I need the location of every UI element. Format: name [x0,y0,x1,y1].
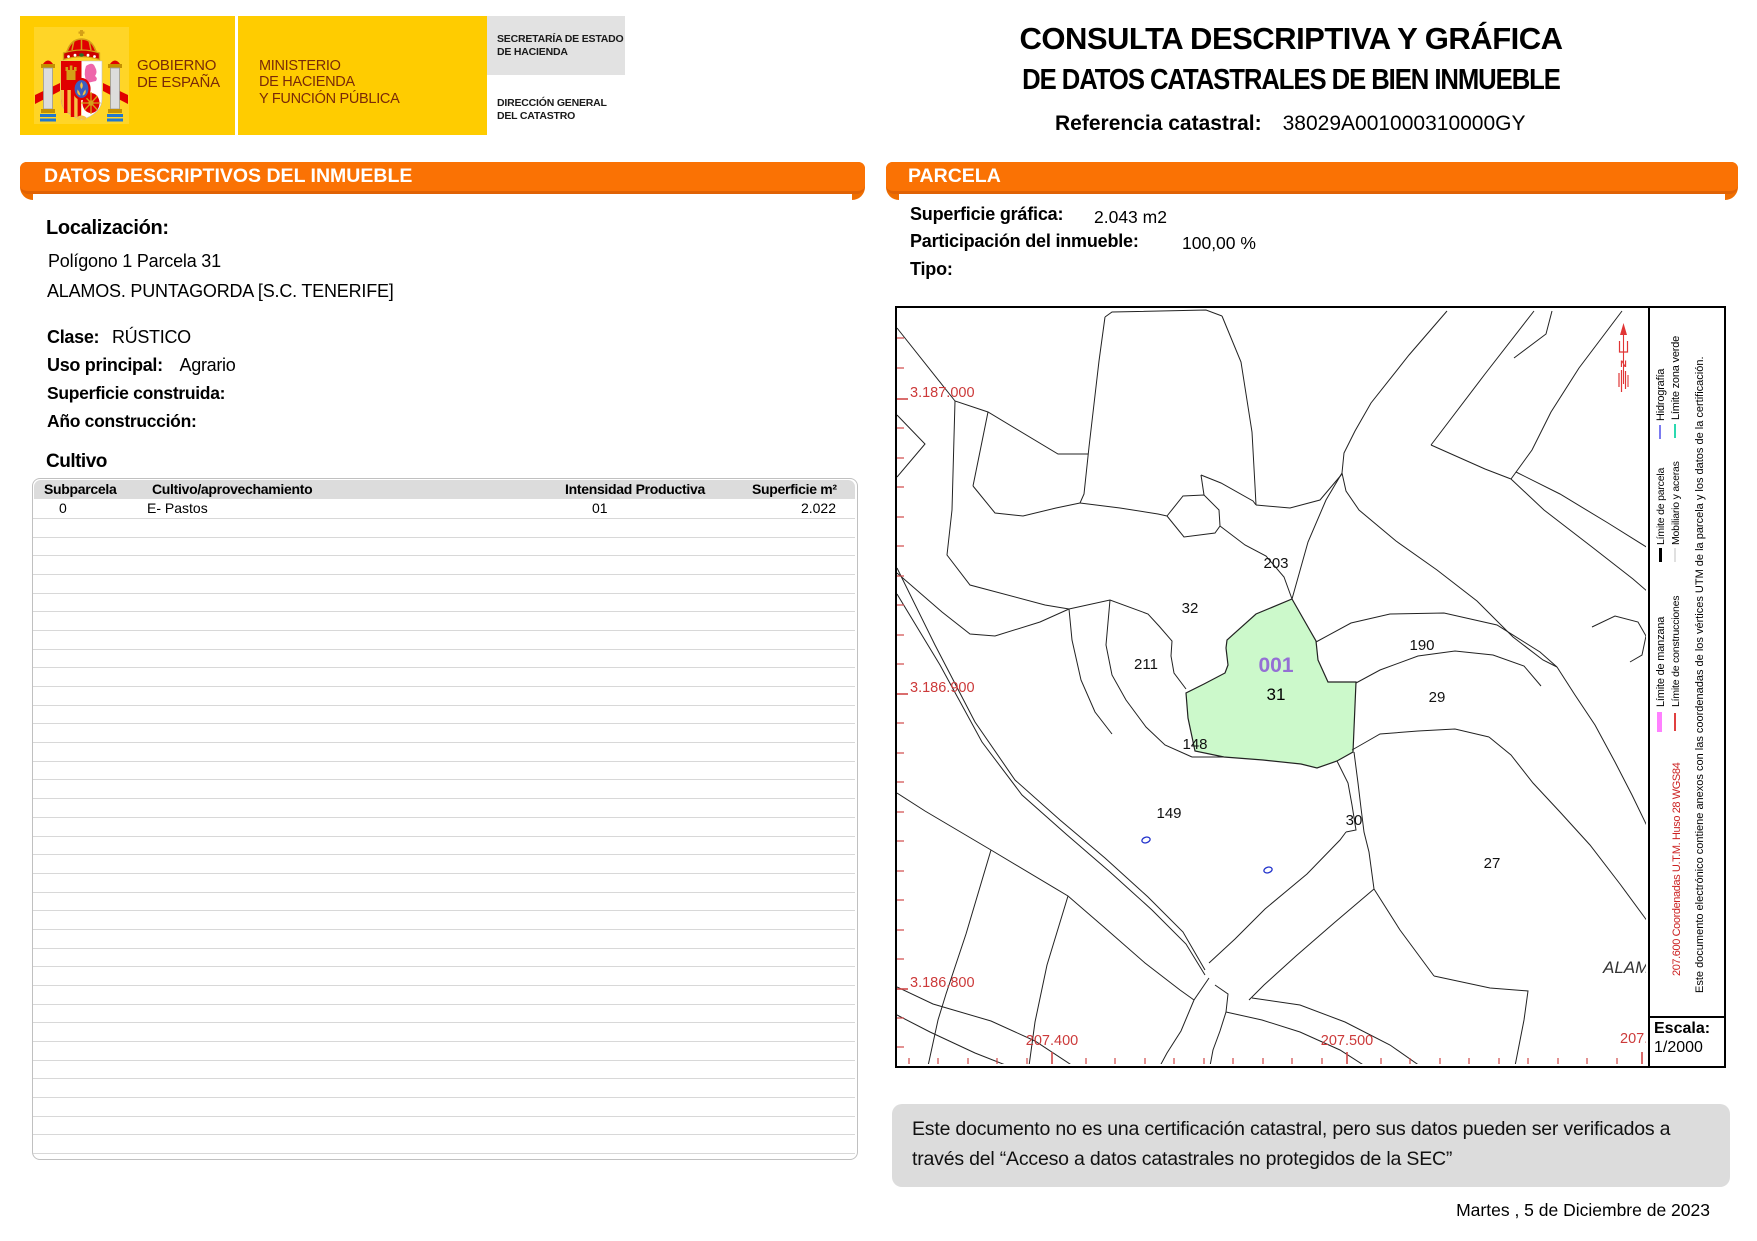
svg-text:190: 190 [1409,637,1434,654]
svg-text:001: 001 [1258,654,1293,677]
svg-text:148: 148 [1182,736,1207,753]
svg-text:207.400: 207.400 [1026,1033,1078,1049]
svg-text:30: 30 [1346,812,1363,829]
svg-text:149: 149 [1156,805,1181,822]
svg-text:N: N [1620,359,1627,369]
svg-text:207.500: 207.500 [1321,1033,1373,1049]
svg-text:27: 27 [1484,855,1501,872]
svg-text:3.187.000: 3.187.000 [910,385,975,401]
svg-text:29: 29 [1429,689,1446,706]
svg-text:207.: 207. [1620,1031,1646,1047]
svg-text:3.186.800: 3.186.800 [910,975,975,991]
svg-text:ALAM: ALAM [1602,958,1646,977]
svg-text:31: 31 [1267,685,1286,704]
svg-text:211: 211 [1134,656,1158,673]
svg-text:32: 32 [1182,600,1199,617]
svg-text:3.186.900: 3.186.900 [910,680,975,696]
svg-text:203: 203 [1263,555,1288,572]
